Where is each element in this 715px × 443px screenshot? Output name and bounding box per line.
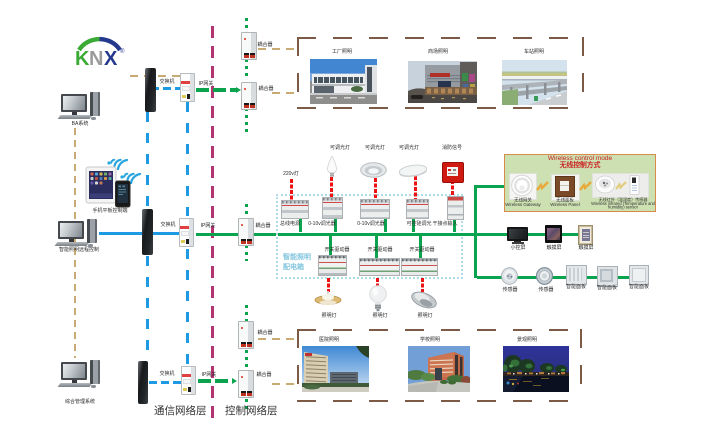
svg-text:K: K [75,48,90,68]
svg-text:®: ® [120,48,125,55]
svg-text:X: X [104,48,118,68]
svg-text:N: N [89,48,103,68]
